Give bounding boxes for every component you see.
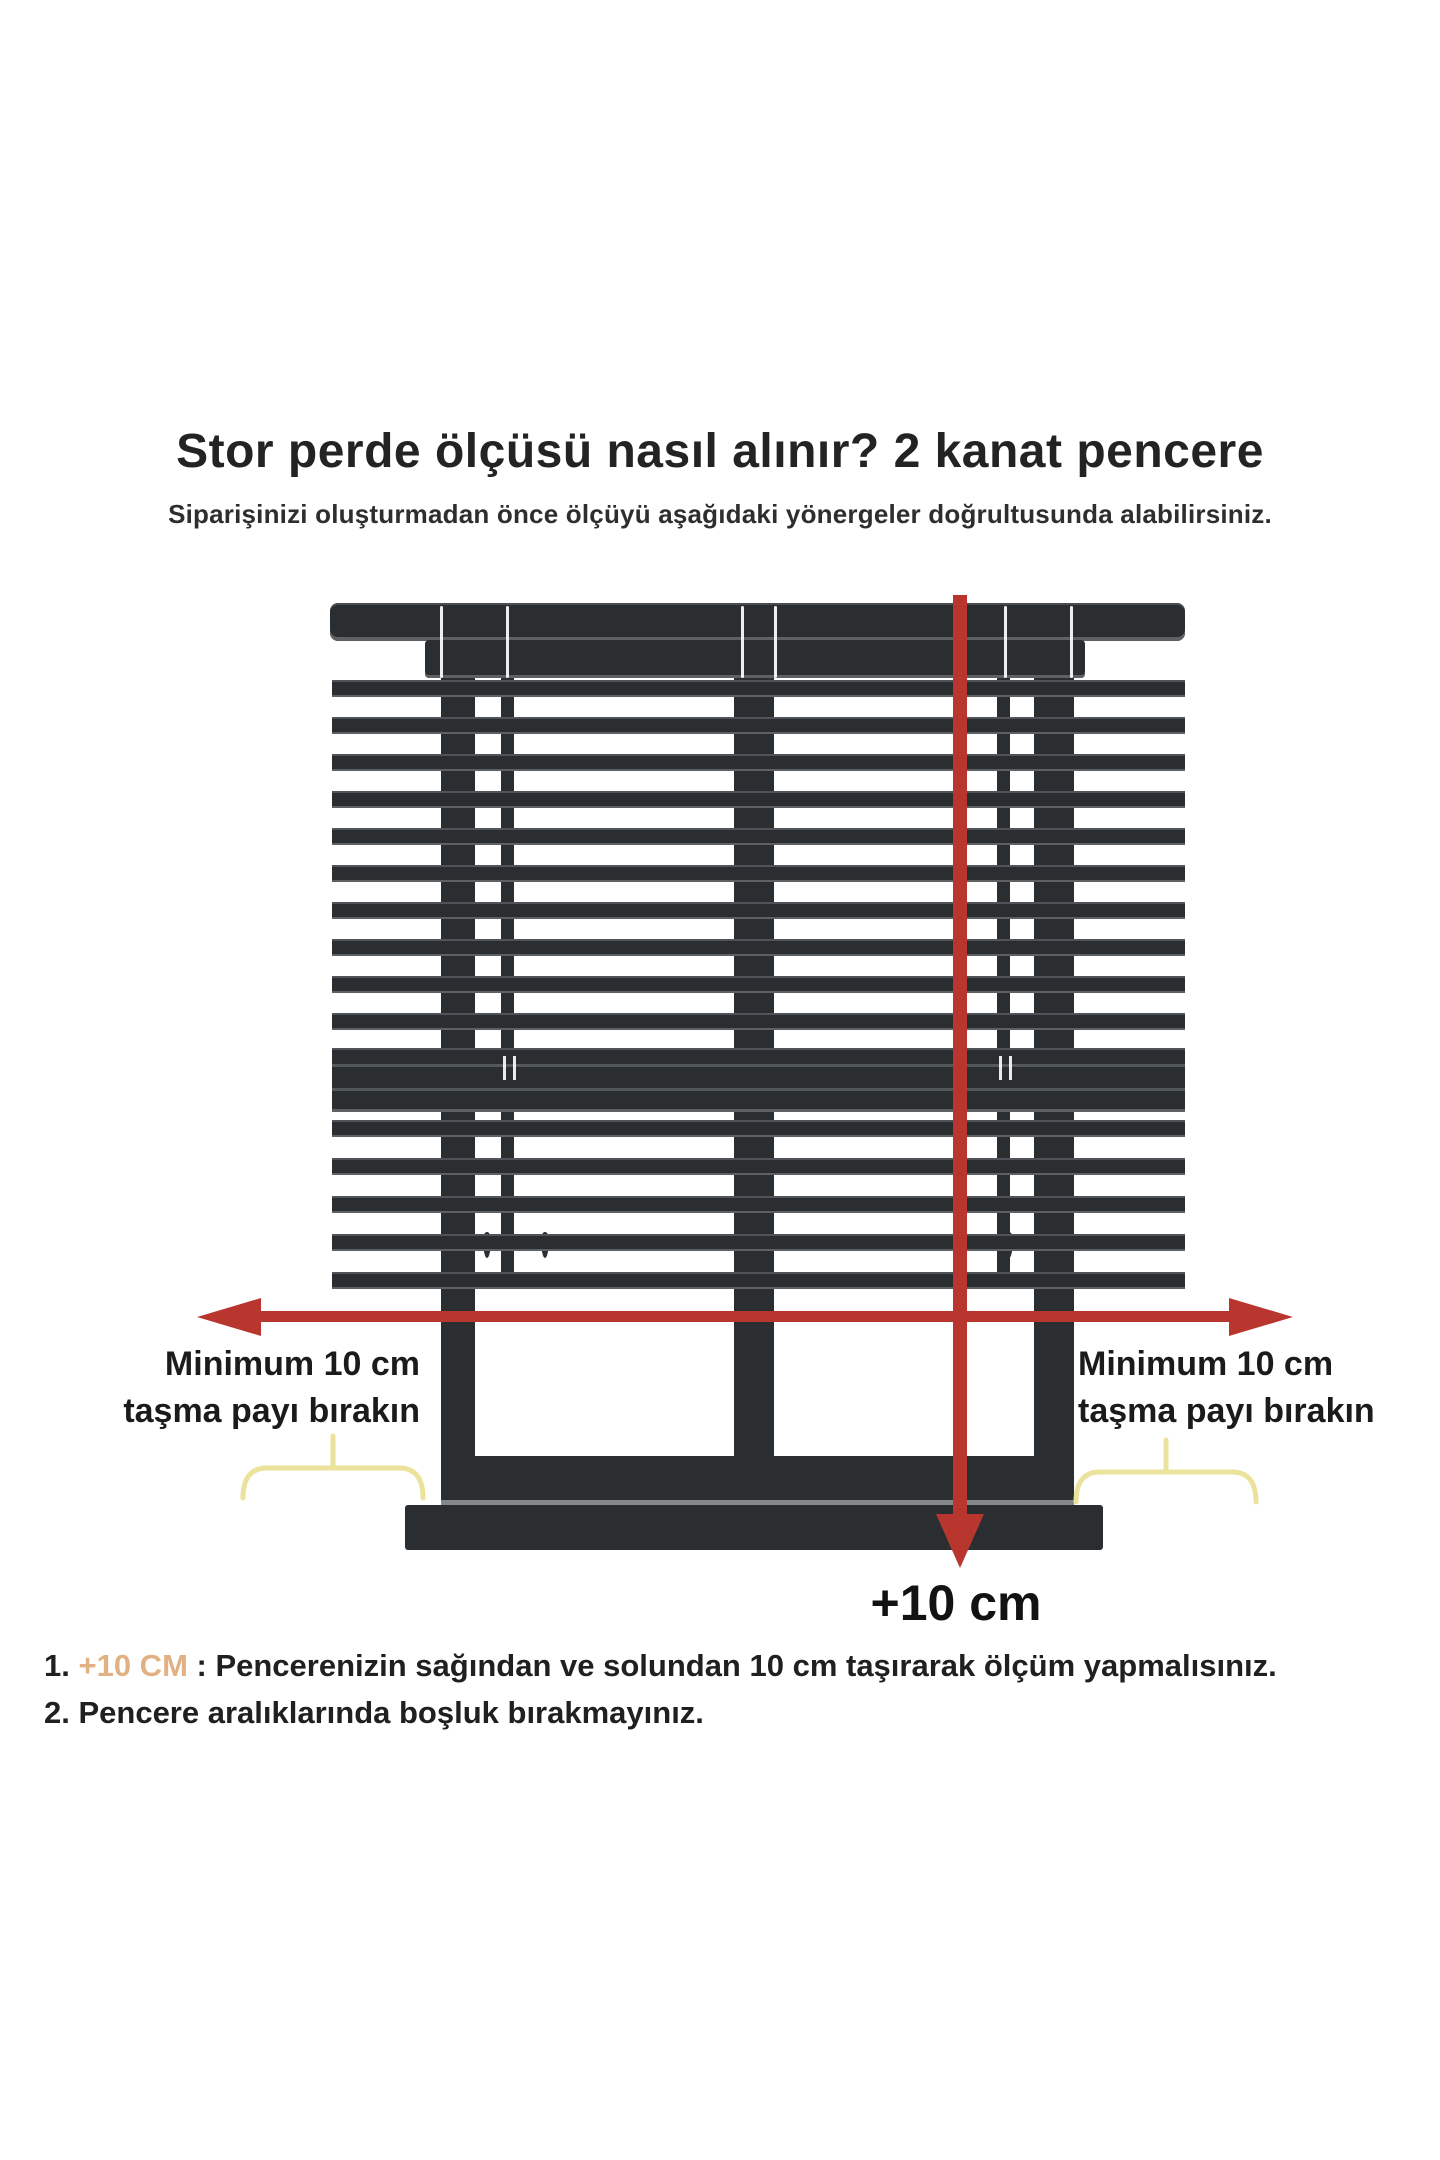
lift-cord-highlight — [1070, 606, 1073, 678]
left-overhang-line2: taşma payı bırakın — [123, 1388, 420, 1435]
instruction-text: Pencere aralıklarında boşluk bırakmayını… — [70, 1695, 704, 1730]
arrowhead-right — [1229, 1298, 1293, 1336]
instructions-list: 1. +10 CM : Pencerenizin sağından ve sol… — [44, 1642, 1414, 1736]
rail-tick — [1009, 1056, 1012, 1080]
measuring-guide-poster: Stor perde ölçüsü nasıl alınır? 2 kanat … — [0, 0, 1440, 2160]
left-overhang-brace — [237, 1430, 429, 1502]
window-meeting-rail — [332, 1048, 1185, 1112]
rail-edge-line — [332, 1088, 1185, 1091]
lift-cord-highlight — [506, 606, 509, 678]
instruction-item-1: 1. +10 CM : Pencerenizin sağından ve sol… — [44, 1642, 1414, 1689]
instruction-number: 2. — [44, 1695, 70, 1730]
right-overhang-line2: taşma payı bırakın — [1078, 1388, 1375, 1435]
left-overhang-line1: Minimum 10 cm — [123, 1341, 420, 1388]
lift-cord-highlight — [440, 606, 443, 678]
instruction-item-2: 2. Pencere aralıklarında boşluk bırakmay… — [44, 1689, 1414, 1736]
width-measure-arrow — [228, 1311, 1236, 1322]
rail-edge-line — [332, 1064, 1185, 1067]
right-overhang-label: Minimum 10 cm taşma payı bırakın — [1078, 1341, 1375, 1435]
lift-cord-highlight — [1004, 606, 1007, 678]
instruction-highlight: +10 CM — [78, 1648, 187, 1683]
left-overhang-label: Minimum 10 cm taşma payı bırakın — [123, 1341, 420, 1435]
blind-slats-lower — [332, 1120, 1185, 1290]
rail-tick — [503, 1056, 506, 1080]
blind-slats-upper — [332, 680, 1185, 1030]
window-sill — [405, 1505, 1103, 1550]
right-overhang-line1: Minimum 10 cm — [1078, 1341, 1375, 1388]
height-overhang-label: +10 cm — [871, 1574, 1042, 1632]
window-bottom-rail — [441, 1456, 1074, 1506]
arrowhead-left — [197, 1298, 261, 1336]
instruction-number: 1. — [44, 1648, 70, 1683]
arrowhead-down — [936, 1514, 984, 1568]
page-title: Stor perde ölçüsü nasıl alınır? 2 kanat … — [0, 424, 1440, 479]
right-overhang-brace — [1070, 1434, 1262, 1506]
height-measure-arrow — [953, 595, 967, 1520]
instruction-text: : Pencerenizin sağından ve solundan 10 c… — [188, 1648, 1277, 1683]
lift-cord-highlight — [741, 606, 744, 678]
window-top-frame — [425, 640, 1085, 678]
rail-tick — [999, 1056, 1002, 1080]
blind-headrail — [330, 603, 1185, 641]
rail-tick — [513, 1056, 516, 1080]
page-subtitle: Siparişinizi oluşturmadan önce ölçüyü aş… — [0, 499, 1440, 530]
lift-cord-highlight — [774, 606, 777, 678]
